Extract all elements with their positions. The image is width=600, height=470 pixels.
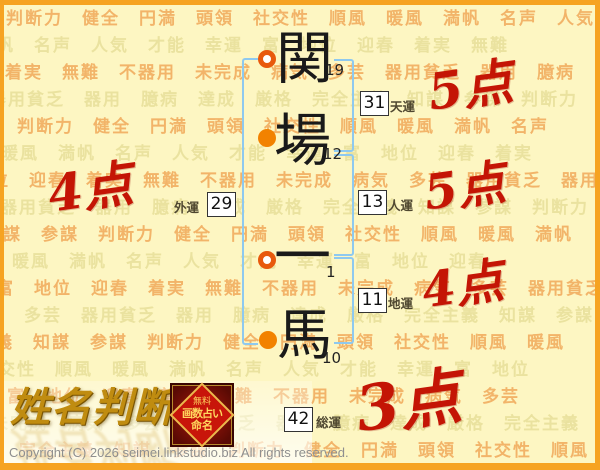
frame-top xyxy=(0,0,600,5)
tenun-score: 5点 xyxy=(425,56,516,117)
frame-bottom xyxy=(0,463,600,470)
jinun-value-box: 13 xyxy=(358,190,387,215)
name-char-1: 関 xyxy=(276,31,333,88)
frame-left xyxy=(0,0,4,470)
chiun-bracket xyxy=(334,257,354,344)
souun-score: 3点 xyxy=(352,365,465,441)
tenun-label: 天運 xyxy=(390,96,415,115)
badge-text: 無料 画数占い 命名 xyxy=(170,383,234,447)
chiun-label: 地運 xyxy=(388,293,413,312)
seimei-handan-result-page: 判断力 健全 円満 頭領 社交性 順風 暖風 満帆 名声 人気満帆 名声 人気 … xyxy=(0,0,600,470)
stroke-count-4: 10 xyxy=(322,349,341,367)
marker-hollow-icon xyxy=(258,50,276,68)
jinun-score: 5点 xyxy=(421,159,508,218)
chiun-score: 4点 xyxy=(419,257,506,316)
souun-value-box: 42 xyxy=(284,407,313,432)
badge-line-3: 命名 xyxy=(191,420,213,433)
chiun-value-box: 11 xyxy=(358,288,387,313)
stroke-count-1: 19 xyxy=(325,61,344,79)
tenun-value-box: 31 xyxy=(360,91,389,116)
stroke-count-2: 12 xyxy=(323,145,342,163)
gaiun-score: 4点 xyxy=(45,158,136,219)
frame-right xyxy=(595,0,600,470)
gaiun-label: 外運 xyxy=(174,197,199,216)
gaiun-value-box: 29 xyxy=(207,192,236,217)
jinun-bracket xyxy=(334,154,354,256)
kakusu-uranai-badge[interactable]: 無料 画数占い 命名 xyxy=(170,383,234,447)
marker-filled-icon xyxy=(259,331,277,349)
badge-line-1: 無料 xyxy=(193,397,211,407)
jinun-label: 人運 xyxy=(388,195,413,214)
site-logo[interactable]: 姓名判断 xyxy=(10,386,174,430)
name-char-3: 一 xyxy=(274,229,331,286)
copyright-text: Copyright (C) 2026 seimei.linkstudio.biz… xyxy=(9,445,349,460)
souun-label: 総運 xyxy=(316,412,341,431)
stroke-count-3: 1 xyxy=(326,263,336,281)
gaiun-bracket xyxy=(242,58,258,345)
